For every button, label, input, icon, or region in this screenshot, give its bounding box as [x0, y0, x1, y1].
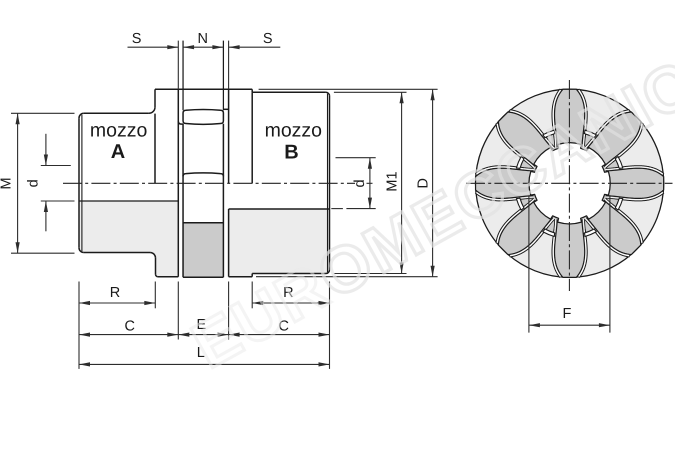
svg-text:mozzo: mozzo	[90, 120, 148, 142]
svg-text:C: C	[124, 318, 134, 334]
svg-text:S: S	[263, 31, 273, 47]
svg-text:M1: M1	[384, 171, 400, 191]
svg-text:mozzo: mozzo	[265, 120, 323, 142]
svg-text:B: B	[284, 142, 298, 164]
svg-text:d: d	[26, 179, 42, 187]
svg-text:M: M	[0, 177, 14, 189]
svg-text:A: A	[111, 141, 125, 163]
svg-text:F: F	[562, 306, 571, 322]
svg-text:d: d	[352, 179, 368, 187]
svg-text:S: S	[132, 31, 142, 47]
svg-text:N: N	[197, 31, 207, 47]
svg-text:R: R	[110, 285, 120, 301]
